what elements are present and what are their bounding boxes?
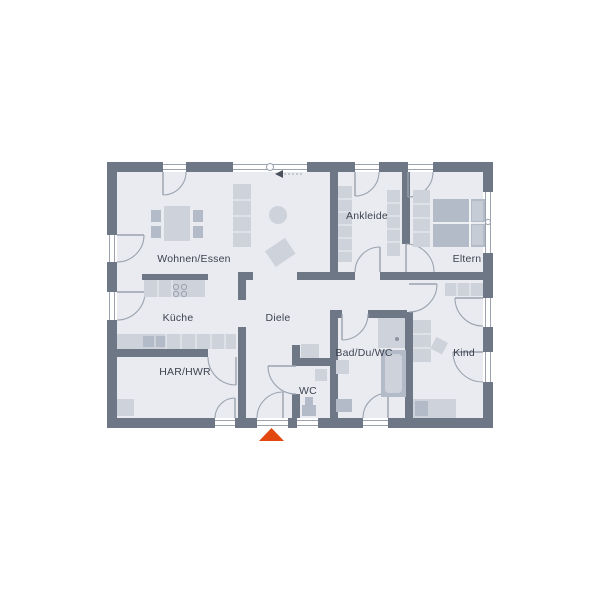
washer [117, 399, 134, 416]
wc-basin [315, 369, 327, 381]
entrance-marker [259, 428, 284, 441]
room-label-kind: Kind [453, 347, 475, 359]
lift-slide-marker-icon [267, 164, 274, 171]
kitchen-counter [117, 334, 236, 349]
chair [193, 210, 203, 222]
window-divider-marker-icon [485, 219, 490, 224]
shower [378, 318, 405, 348]
room-label-diele: Diele [266, 312, 291, 324]
sink [143, 336, 154, 347]
wardrobe-kind [445, 283, 483, 296]
room-label-bad-du-wc: Bad/Du/WC [335, 347, 392, 359]
bed-pillow [472, 225, 483, 245]
chair [151, 210, 161, 222]
kind-bed-pillow [415, 401, 428, 416]
chair [151, 226, 161, 238]
wc-toilet-tank [302, 405, 316, 416]
shower-drain-icon [395, 337, 399, 341]
sideboard [301, 344, 319, 358]
wardrobe-right [387, 190, 400, 256]
bed-pillow [472, 201, 483, 221]
dining-table [164, 206, 190, 241]
desk [413, 320, 431, 362]
bathtub-inner [385, 354, 402, 393]
wc-toilet-bowl [305, 397, 313, 406]
floor-plan: Wohnen/Essen Küche HAR/HWR Diele WC Bad/… [0, 0, 600, 600]
bath-toilet [336, 399, 352, 412]
chair [193, 226, 203, 238]
room-label-ankleide: Ankleide [346, 210, 388, 222]
room-label-har-hwr: HAR/HWR [159, 366, 211, 378]
bath-basin [336, 360, 349, 374]
room-label-eltern: Eltern [453, 253, 482, 265]
room-label-wohnen-essen: Wohnen/Essen [157, 253, 230, 265]
stove [156, 336, 166, 347]
room-label-kueche: Küche [163, 312, 194, 324]
floor-plan-canvas: Wohnen/Essen Küche HAR/HWR Diele WC Bad/… [0, 0, 600, 600]
round-table [269, 206, 287, 224]
room-label-wc: WC [299, 385, 317, 397]
